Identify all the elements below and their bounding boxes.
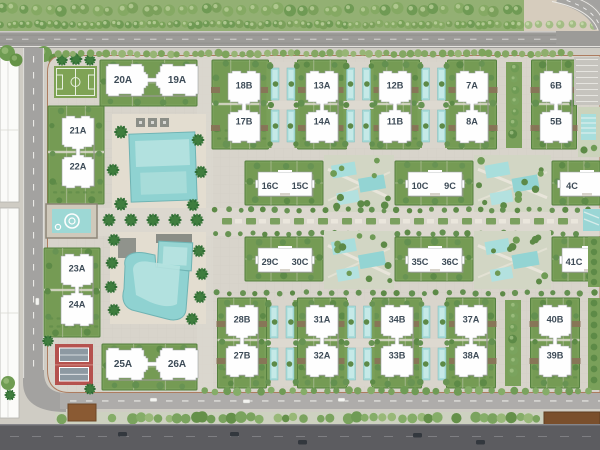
svg-text:5B: 5B [550, 117, 562, 127]
svg-text:39B: 39B [547, 351, 564, 361]
svg-text:18B: 18B [236, 81, 253, 91]
svg-text:11B: 11B [387, 117, 404, 127]
svg-text:6B: 6B [550, 81, 562, 91]
svg-text:17B: 17B [236, 117, 253, 127]
svg-text:31A: 31A [314, 315, 331, 325]
svg-text:14A: 14A [314, 117, 331, 127]
svg-text:40B: 40B [547, 315, 564, 325]
svg-text:8A: 8A [466, 117, 478, 127]
svg-text:38A: 38A [463, 351, 480, 361]
svg-text:32A: 32A [314, 351, 331, 361]
svg-text:22A: 22A [70, 162, 87, 172]
svg-text:36C: 36C [442, 257, 459, 267]
svg-text:13A: 13A [314, 81, 331, 91]
svg-text:34B: 34B [389, 315, 406, 325]
svg-text:7A: 7A [466, 81, 478, 91]
svg-text:33B: 33B [389, 351, 406, 361]
svg-text:25A: 25A [114, 359, 132, 370]
svg-text:35C: 35C [412, 257, 429, 267]
svg-text:10C: 10C [412, 181, 429, 191]
svg-text:41C: 41C [566, 257, 583, 267]
svg-text:21A: 21A [70, 126, 87, 136]
svg-text:19A: 19A [168, 75, 186, 86]
svg-text:15C: 15C [292, 181, 309, 191]
svg-text:9C: 9C [444, 181, 456, 191]
svg-text:29C: 29C [262, 257, 279, 267]
svg-text:20A: 20A [114, 75, 132, 86]
svg-text:27B: 27B [234, 351, 251, 361]
svg-text:23A: 23A [69, 264, 86, 274]
svg-text:37A: 37A [463, 315, 480, 325]
svg-text:26A: 26A [168, 359, 186, 370]
svg-text:24A: 24A [69, 300, 86, 310]
svg-text:4C: 4C [566, 181, 578, 191]
svg-text:28B: 28B [234, 315, 251, 325]
svg-text:12B: 12B [387, 81, 404, 91]
svg-text:30C: 30C [292, 257, 309, 267]
svg-text:16C: 16C [262, 181, 279, 191]
